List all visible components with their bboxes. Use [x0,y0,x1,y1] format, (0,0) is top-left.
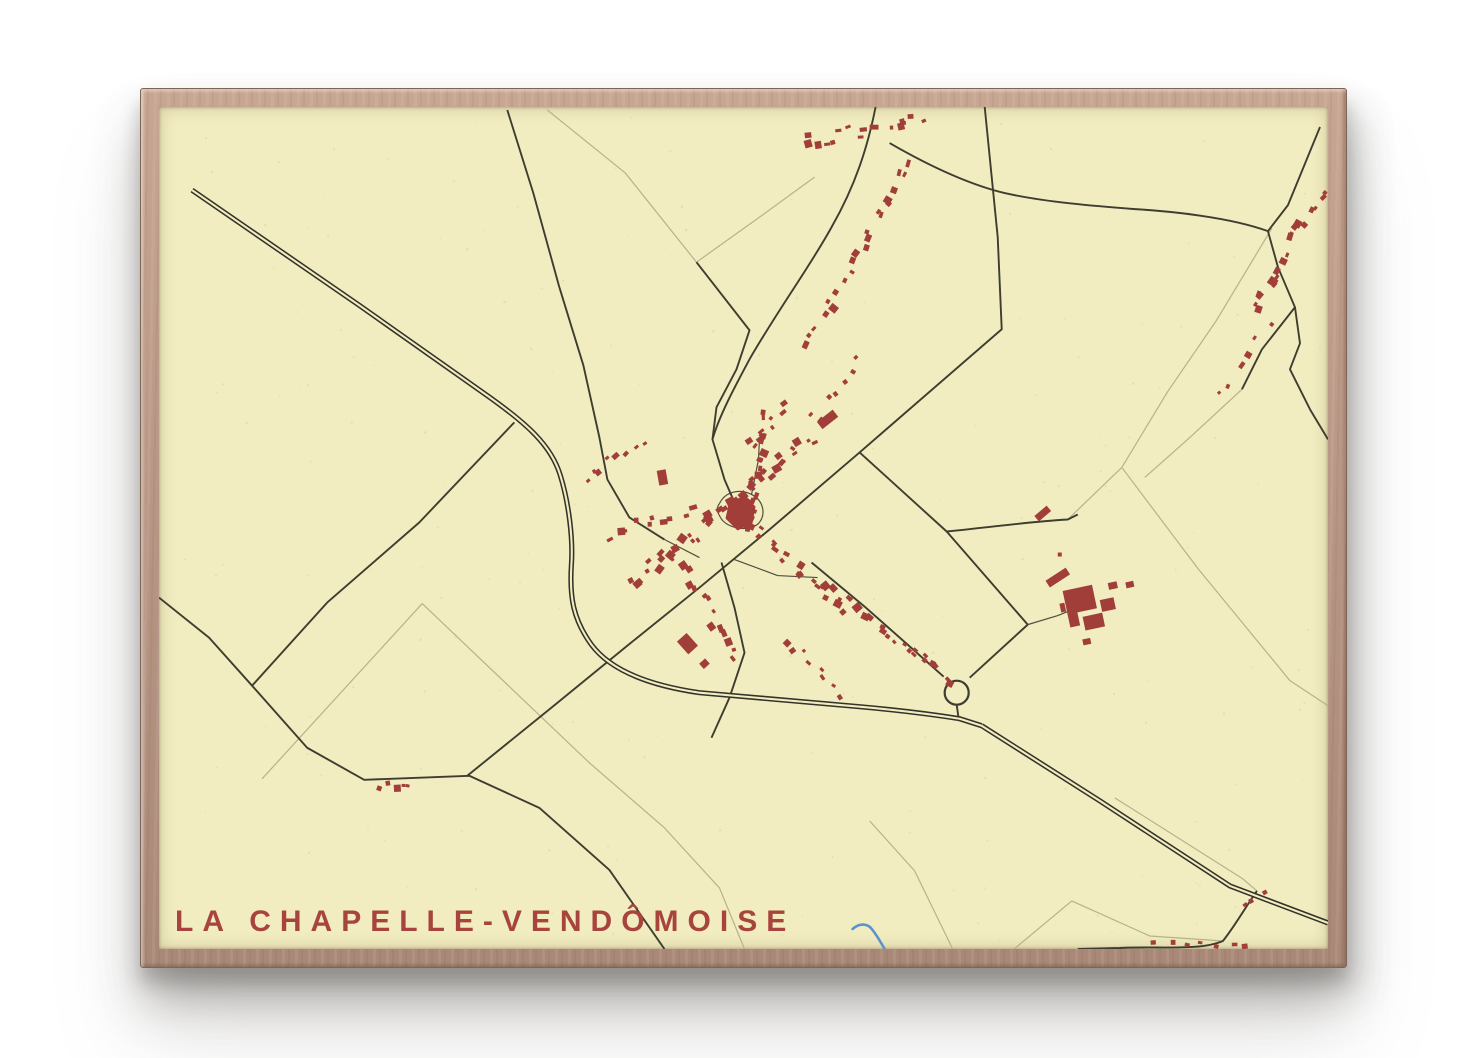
stream [853,925,885,949]
map-canvas [159,107,1328,949]
track-lines [262,110,1328,949]
buildings [376,114,1328,949]
minor-lanes [664,437,1077,624]
photo-backdrop: LA CHAPELLE-VENDÔMOISE [0,0,1480,1058]
poster-frame: LA CHAPELLE-VENDÔMOISE [140,88,1347,968]
map-title: LA CHAPELLE-VENDÔMOISE [175,907,795,937]
motorway [192,190,1328,923]
map-paper: LA CHAPELLE-VENDÔMOISE [159,107,1328,949]
